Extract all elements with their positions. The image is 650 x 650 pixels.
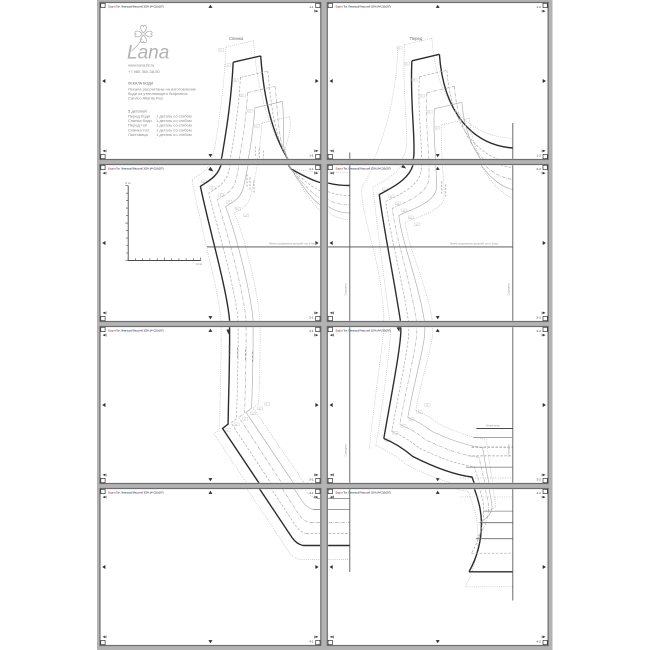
svg-text:Боди и Топ. Лекала.pdf Масштаб: Боди и Топ. Лекала.pdf Масштаб 100% (А4 … [336,168,391,171]
svg-text:Боди и Топ. Лекала.pdf Масштаб: Боди и Топ. Лекала.pdf Масштаб 100% (А4 … [336,492,391,495]
svg-text:3-1: 3-1 [309,478,314,482]
svg-text:1-1: 1-1 [309,5,314,9]
svg-text:2-2: 2-2 [537,316,542,320]
svg-text:Боди и Топ. Лекала.pdf Масштаб: Боди и Топ. Лекала.pdf Масштаб 100% (А4 … [108,492,163,495]
svg-text:1-2: 1-2 [537,154,542,158]
svg-text:2-2: 2-2 [537,167,542,171]
svg-text:3-2: 3-2 [537,329,542,333]
svg-text:Боди и Топ. Лекала.pdf Масштаб: Боди и Топ. Лекала.pdf Масштаб 100% (А4 … [336,330,391,333]
svg-text:Боди и Топ. Лекала.pdf Масштаб: Боди и Топ. Лекала.pdf Масштаб 100% (А4 … [108,330,163,333]
svg-text:3-1: 3-1 [309,329,314,333]
svg-text:4-2: 4-2 [537,640,542,644]
svg-text:4-2: 4-2 [537,491,542,495]
svg-text:1-1: 1-1 [309,154,314,158]
svg-text:4-1: 4-1 [309,491,314,495]
svg-text:4-1: 4-1 [309,640,314,644]
svg-text:1-2: 1-2 [537,5,542,9]
svg-text:Боди и Топ. Лекала.pdf Масштаб: Боди и Топ. Лекала.pdf Масштаб 100% (А4 … [336,6,391,9]
svg-text:Боди и Топ. Лекала.pdf Масштаб: Боди и Топ. Лекала.pdf Масштаб 100% (А4 … [108,168,163,171]
svg-text:Боди и Топ. Лекала.pdf Масштаб: Боди и Топ. Лекала.pdf Масштаб 100% (А4 … [108,6,163,9]
svg-text:2-1: 2-1 [309,316,314,320]
svg-text:3-2: 3-2 [537,478,542,482]
svg-text:2-1: 2-1 [309,167,314,171]
